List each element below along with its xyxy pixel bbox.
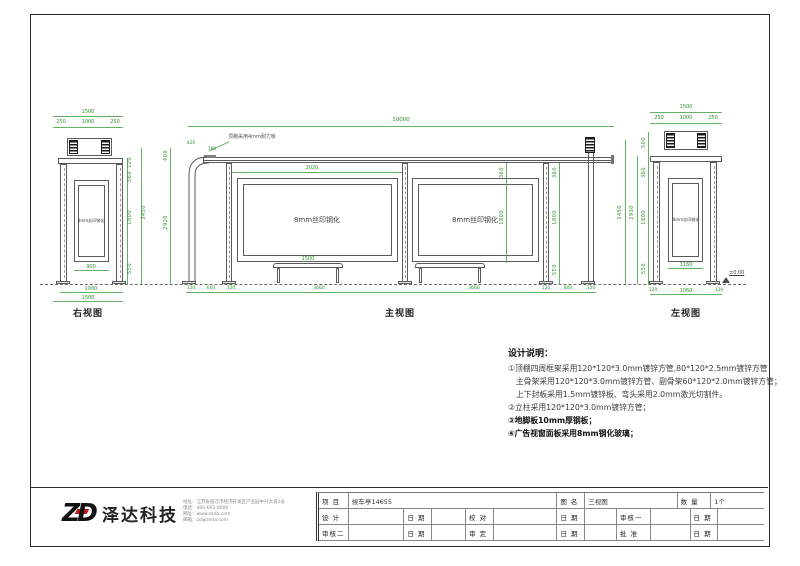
dim-label: 420: [187, 141, 196, 147]
date-value: [432, 509, 466, 525]
roof-slab: [58, 158, 123, 164]
review1-label: 审核一: [617, 509, 651, 525]
dim-label: 3450: [142, 205, 147, 220]
panel-glass-label: 8mm丝印钢化: [78, 218, 104, 224]
date-value: [585, 525, 617, 541]
dim-label: 600: [207, 286, 216, 292]
qty-label: 数 量: [678, 493, 712, 509]
ratify-value: [651, 525, 691, 541]
sign-post-cap: [585, 137, 595, 153]
design-note-item: ③地脚板10mm厚钢板；: [508, 414, 768, 427]
column-centerline: [657, 166, 658, 278]
shelter-column: [226, 163, 232, 282]
dim-line: [53, 127, 123, 128]
shelter-column: [653, 162, 660, 282]
bench-leg: [419, 268, 422, 283]
dim-label: 1800: [500, 210, 505, 225]
zd-logo: ZD: [62, 499, 98, 527]
dim-label: 250: [654, 115, 664, 121]
dim-line: [650, 294, 722, 295]
review1-value: [651, 509, 691, 525]
dim-line: [506, 163, 507, 263]
dim-label: 120: [187, 286, 196, 292]
bench-rail: [415, 263, 485, 268]
base-plate: [398, 281, 412, 284]
base-plate: [56, 281, 70, 284]
lightbox-hatch: [69, 140, 78, 154]
shelter-column: [60, 164, 67, 282]
panel-glass-label: 8mm丝印钢化: [294, 215, 340, 225]
design-note-item: ④广告视窗面板采用8mm钢化玻璃；: [508, 427, 768, 440]
lightbox-hatch: [101, 140, 110, 154]
title-block-row: 审核二 日 期 审 定 日 期 批 准 日 期: [319, 525, 764, 541]
dim-line: [226, 172, 406, 173]
dim-label: 1800: [128, 210, 133, 225]
dim-label: 2930: [630, 205, 635, 220]
project-value: 候车亭14655: [349, 493, 558, 509]
dim-line: [648, 132, 649, 284]
review2-label: 审核二: [319, 525, 349, 541]
dim-label: 120: [542, 286, 551, 292]
lightbox-hatch: [666, 133, 675, 148]
dim-label: 3450: [618, 205, 623, 220]
review2-value: [349, 525, 405, 541]
dim-label: 120: [128, 157, 133, 168]
dim-line: [60, 292, 123, 293]
design-value: [349, 509, 405, 525]
approve-label: 审 定: [466, 525, 494, 541]
sign-post: [588, 140, 589, 282]
date-label: 日 期: [404, 525, 432, 541]
dim-line: [650, 112, 722, 113]
dim-line: [637, 156, 638, 284]
design-note-item: ①顶棚四周框架采用120*120*3.0mm镀锌方管,80*120*2.5mm镀…: [508, 362, 768, 375]
bench-leg: [277, 268, 280, 283]
front-view-title: 主视图: [385, 306, 415, 319]
roof-end-cap: [611, 155, 614, 164]
date-value: [718, 509, 764, 525]
base-plate: [706, 281, 720, 284]
panel-glass-label: 8mm丝印钢化: [673, 217, 699, 223]
dim-line: [625, 140, 626, 284]
dim-label: 120: [227, 286, 236, 292]
bench-leg: [336, 268, 339, 283]
base-plate: [649, 281, 663, 284]
dim-label: 550: [642, 263, 647, 274]
dim-label: 1500: [680, 104, 693, 110]
base-plate: [182, 281, 196, 284]
dim-line: [74, 270, 109, 271]
dim-label: 1800: [642, 210, 647, 225]
base-plate: [581, 281, 595, 284]
dim-line: [170, 148, 171, 284]
design-note-item: 主骨架采用120*120*3.0mm镀锌方管、副骨架60*120*2.0mm镀锌…: [508, 375, 768, 388]
shelter-column: [402, 163, 408, 282]
date-label: 日 期: [557, 509, 585, 525]
dim-label: 10000: [392, 117, 410, 123]
title-block-table: 项 目 候车亭14655 图 名 三视图 数 量 1个 设 计 日 期 校 对 …: [316, 492, 764, 541]
design-notes-title: 设计说明：: [508, 346, 768, 359]
company-email: 邮箱：zd@zeda.com: [183, 518, 285, 524]
dim-line: [668, 268, 703, 269]
base-plate: [112, 281, 126, 284]
ground-line: [40, 284, 746, 285]
date-value: [585, 509, 617, 525]
column-centerline: [229, 167, 230, 278]
shelter-column: [543, 163, 549, 282]
approve-value: [494, 525, 558, 541]
title-block-row: 设 计 日 期 校 对 日 期 审核一 日 期: [319, 509, 764, 525]
dim-line: [188, 126, 614, 127]
dim-label: 250: [56, 119, 66, 125]
title-block-row: 项 目 候车亭14655 图 名 三视图 数 量 1个: [319, 493, 764, 509]
column-centerline: [714, 166, 715, 278]
roof-material-note: 顶棚采用4mm耐力板: [228, 133, 276, 140]
dim-label: 360: [642, 167, 647, 178]
dim-label: 400: [164, 150, 169, 161]
drawing-sheet: 1500 250 1000 250 8mm丝印钢化 120 560 1800 5…: [0, 0, 800, 566]
base-plate: [222, 281, 236, 284]
proof-value: [494, 509, 558, 525]
dim-label: 1000: [82, 119, 95, 125]
dim-label: 250: [110, 119, 120, 125]
dim-label: 800: [564, 286, 573, 292]
left-view-title: 左视图: [671, 306, 701, 319]
qty-value: 1个: [711, 493, 764, 509]
column-centerline: [546, 167, 547, 278]
date-label: 日 期: [691, 525, 719, 541]
design-notes: 设计说明： ①顶棚四周框架采用120*120*3.0mm镀锌方管,80*120*…: [508, 346, 768, 440]
column-centerline: [405, 167, 406, 278]
drawing-name-value: 三视图: [585, 493, 677, 509]
right-view-title: 右视图: [73, 306, 103, 319]
base-plate: [539, 281, 553, 284]
dim-label: 1500: [82, 109, 95, 115]
dim-label: 1800: [553, 210, 558, 225]
ground-level-marker: [722, 277, 730, 283]
proof-label: 校 对: [466, 509, 494, 525]
bench-leg: [478, 268, 481, 283]
dim-label: 120: [587, 286, 596, 292]
lightbox-hatch: [697, 133, 706, 148]
dim-label: 560: [128, 171, 133, 182]
bench-rail: [273, 263, 343, 268]
roof-beam: [203, 157, 614, 163]
dim-line: [650, 123, 722, 124]
ground-level-label: ±0.00: [729, 270, 744, 276]
curved-pole: [183, 153, 211, 285]
date-label: 日 期: [557, 525, 585, 541]
ratify-label: 批 准: [617, 525, 651, 541]
dim-label: 500: [642, 137, 647, 148]
roof-beam-line: [204, 160, 613, 161]
dim-label: 2920: [164, 215, 169, 230]
shelter-column: [116, 164, 123, 282]
project-label: 项 目: [319, 493, 349, 509]
dim-label: 2020: [306, 165, 319, 171]
dim-line: [559, 163, 560, 284]
drawing-name-label: 图 名: [557, 493, 585, 509]
column-centerline: [120, 168, 121, 278]
dim-label: 550: [553, 264, 558, 275]
dim-label: 360: [553, 167, 558, 178]
sign-post: [593, 140, 594, 282]
dim-label: 3660: [313, 286, 324, 292]
design-note-item: ②立柱采用120*120*3.0mm镀锌方管；: [508, 401, 768, 414]
dim-label: 360: [500, 167, 505, 178]
dim-label: 550: [128, 263, 133, 274]
company-name: 泽达科技: [102, 501, 178, 526]
design-label: 设 计: [319, 509, 349, 525]
design-note-item: 上下封板采用1.5mm镀锌板、弯头采用2.0mm激光切割件。: [508, 388, 768, 401]
shelter-column: [710, 162, 717, 282]
dim-line: [186, 292, 596, 293]
dim-line: [53, 301, 123, 302]
company-info: 地址：江苏省宿迁市经济开发区产业园中兴大道2号 电话：400-662-0000 …: [183, 500, 285, 524]
logo-letters: ZD: [62, 499, 95, 527]
dim-label: 1500: [302, 256, 315, 262]
date-value: [718, 525, 764, 541]
dim-line: [53, 116, 123, 117]
dim-label: 3660: [468, 286, 479, 292]
dim-label: 250: [708, 115, 718, 121]
date-value: [432, 525, 466, 541]
dim-label: 1000: [680, 115, 693, 121]
date-label: 日 期: [691, 509, 719, 525]
panel-glass-label: 8mm丝印钢化: [452, 215, 498, 225]
date-label: 日 期: [404, 509, 432, 525]
column-centerline: [64, 168, 65, 278]
